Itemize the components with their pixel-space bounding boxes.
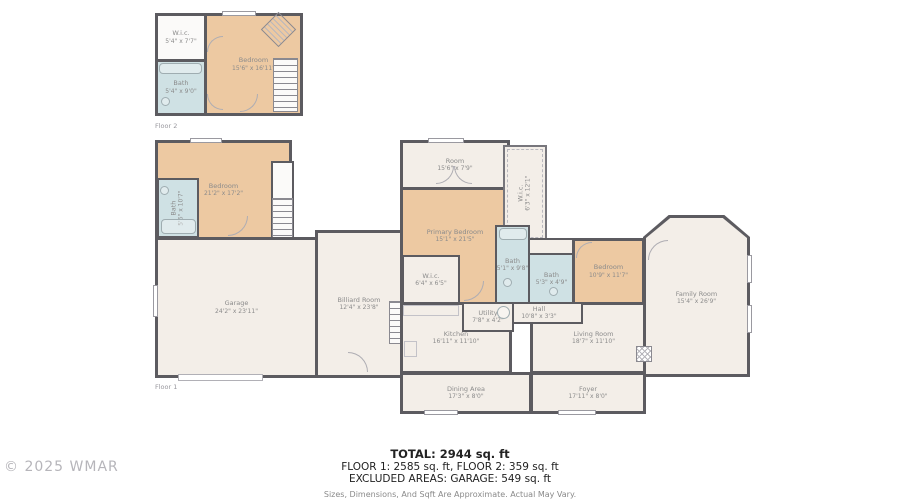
window	[558, 410, 596, 415]
room-label: Bath 5'1" x 9'8"	[497, 257, 528, 273]
room-dims: 6'4" x 6'5"	[415, 280, 446, 288]
window	[424, 410, 458, 415]
window	[747, 305, 752, 333]
room-name: Garage	[215, 299, 258, 307]
room-name: Bedroom	[589, 263, 628, 271]
kitchen-counter-icon	[403, 305, 459, 316]
disclaimer: Sizes, Dimensions, And Sqft Are Approxim…	[0, 490, 900, 499]
room-dims: 5'1" x 9'8"	[497, 265, 528, 273]
room-name: Dining Area	[447, 385, 485, 393]
excluded-sqft: EXCLUDED AREAS: GARAGE: 549 sq. ft	[0, 473, 900, 485]
total-sqft: TOTAL: 2944 sq. ft	[0, 447, 900, 461]
room-label: Kitchen 16'11" x 11'10"	[433, 330, 480, 346]
room-garage: Garage 24'2" x 23'11"	[155, 237, 318, 378]
room-name: Foyer	[568, 385, 607, 393]
room-label: Living Room 18'7" x 11'10"	[572, 330, 615, 346]
room-label: Bedroom 15'6" x 16'11"	[232, 56, 275, 72]
room-dims: 24'2" x 23'11"	[215, 308, 258, 316]
room-dining: Dining Area 17'3" x 8'0"	[400, 372, 532, 414]
room-label: W.i.c. 6'3" x 12'1"	[517, 176, 533, 211]
room-label: Bedroom 21'2" x 17'2"	[204, 182, 243, 198]
room-label: Primary Bedroom 15'1" x 21'5"	[427, 228, 484, 244]
room-label: Garage 24'2" x 23'11"	[215, 299, 258, 315]
room-dims: 6'3" x 12'1"	[525, 176, 533, 211]
room-dims: 12'4" x 23'8"	[338, 304, 381, 312]
floor-plan-canvas: W.i.c. 5'4" x 7'7" Bath 5'4" x 9'0" Bedr…	[0, 0, 900, 500]
room-label: Hall 10'8" x 3'3"	[521, 305, 556, 321]
room-f2-wic: W.i.c. 5'4" x 7'7"	[155, 13, 207, 62]
floor2-label: Floor 2	[155, 122, 177, 130]
bathtub-icon	[159, 63, 202, 74]
room-dims: 15'4" x 26'9"	[643, 298, 750, 306]
room-primary-wic: W.i.c. 6'4" x 6'5"	[402, 255, 460, 305]
room-dims: 16'11" x 11'10"	[433, 338, 480, 346]
fireplace-icon	[636, 346, 652, 362]
window	[190, 138, 222, 143]
window	[747, 255, 752, 283]
room-name: Bedroom	[232, 56, 275, 64]
room-label: Bedroom 10'9" x 11'7"	[589, 263, 628, 279]
window	[428, 138, 464, 143]
bathtub-icon	[499, 228, 527, 240]
watermark: © 2025 WMAR	[4, 459, 119, 475]
room-dims: 5'4" x 9'0"	[165, 88, 196, 96]
bathtub-icon	[161, 219, 196, 234]
room-label: W.i.c. 6'4" x 6'5"	[415, 272, 446, 288]
room-foyer: Foyer 17'11" x 8'0"	[530, 372, 646, 414]
stove-icon	[404, 341, 417, 357]
sqft-summary: TOTAL: 2944 sq. ft FLOOR 1: 2585 sq. ft,…	[0, 447, 900, 499]
room-dims: 15'6" x 16'11"	[232, 65, 275, 73]
room-dims: 17'3" x 8'0"	[447, 393, 485, 401]
room-dims: 5'3" x 4'9"	[536, 279, 567, 287]
room-label: Bath 5'4" x 9'0"	[165, 79, 196, 95]
toilet-icon	[161, 97, 170, 106]
toilet-icon	[503, 278, 512, 287]
sink-icon	[160, 186, 169, 195]
room-name: Bath	[497, 257, 528, 265]
room-dims: 15'1" x 21'5"	[427, 236, 484, 244]
window	[222, 11, 256, 16]
room-dims: 10'8" x 3'3"	[521, 313, 556, 321]
floor1-label: Floor 1	[155, 383, 177, 391]
room-name: Living Room	[572, 330, 615, 338]
room-dims: 21'2" x 17'2"	[204, 190, 243, 198]
room-hall-bath: Bath 5'3" x 4'9"	[528, 253, 575, 305]
fan-icon	[497, 306, 510, 319]
staircase-f2-icon	[273, 58, 298, 112]
room-name: Billiard Room	[338, 296, 381, 304]
room-name: Bath	[165, 79, 196, 87]
room-name: Primary Bedroom	[427, 228, 484, 236]
room-label: Dining Area 17'3" x 8'0"	[447, 385, 485, 401]
window	[153, 285, 158, 317]
room-dims: 17'11" x 8'0"	[568, 393, 607, 401]
room-dims: 10'9" x 11'7"	[589, 272, 628, 280]
room-label: Billiard Room 12'4" x 23'8"	[338, 296, 381, 312]
room-name: Bedroom	[204, 182, 243, 190]
room-family: Family Room 15'4" x 26'9"	[643, 215, 750, 377]
room-label: Bath 5'3" x 4'9"	[536, 271, 567, 287]
toilet-icon	[549, 287, 558, 296]
room-dims: 18'7" x 11'10"	[572, 338, 615, 346]
room-name: Bath	[536, 271, 567, 279]
room-name: W.i.c.	[165, 29, 196, 37]
room-name: W.i.c.	[415, 272, 446, 280]
room-name: Family Room	[643, 290, 750, 298]
room-label: Foyer 17'11" x 8'0"	[568, 385, 607, 401]
room-label: W.i.c. 5'4" x 7'7"	[165, 29, 196, 45]
room-name: Room	[437, 157, 472, 165]
staircase-f1-icon	[272, 198, 293, 239]
room-label: Family Room 15'4" x 26'9"	[643, 290, 750, 306]
room-name: Hall	[521, 305, 556, 313]
room-dims: 7'8" x 4'2"	[472, 317, 503, 325]
room-dims: 5'4" x 7'7"	[165, 38, 196, 46]
room-upper: Room 15'6" x 7'9"	[400, 140, 510, 190]
garage-door-opening	[178, 374, 263, 381]
floor-sqft: FLOOR 1: 2585 sq. ft, FLOOR 2: 359 sq. f…	[0, 461, 900, 473]
